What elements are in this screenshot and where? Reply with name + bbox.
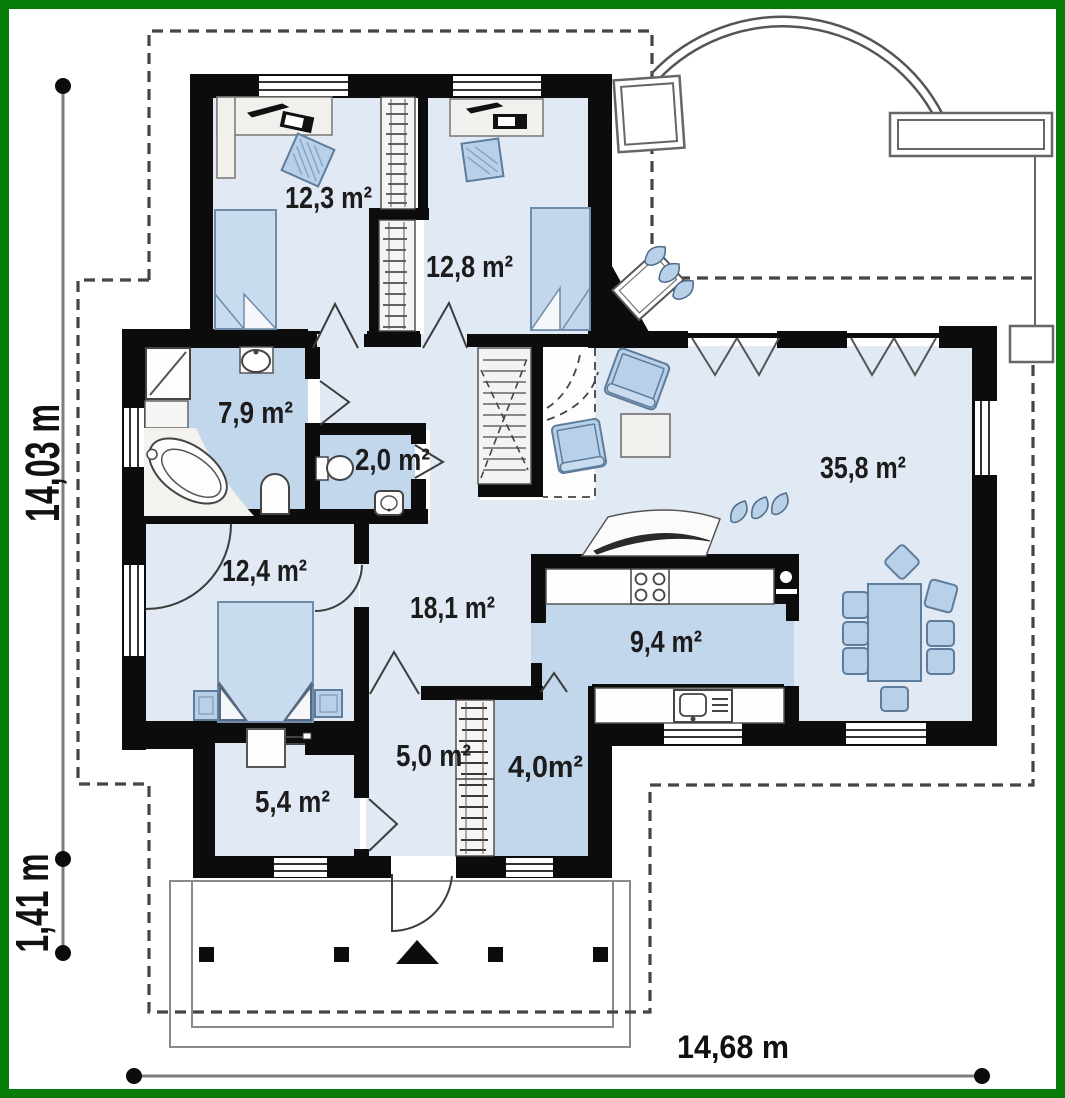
svg-text:2,0 m²: 2,0 m²	[355, 442, 430, 477]
svg-text:5,4 m²: 5,4 m²	[255, 784, 330, 819]
svg-text:12,8 m²: 12,8 m²	[426, 249, 513, 284]
svg-text:1,41 m: 1,41 m	[6, 854, 58, 953]
svg-text:5,0 m²: 5,0 m²	[396, 738, 471, 773]
svg-text:12,3 m²: 12,3 m²	[285, 180, 372, 215]
svg-text:7,9 m²: 7,9 m²	[218, 395, 293, 430]
svg-text:18,1 m²: 18,1 m²	[410, 590, 495, 625]
svg-text:9,4 m²: 9,4 m²	[630, 624, 702, 659]
svg-text:4,0m²: 4,0m²	[508, 749, 583, 784]
svg-text:14,68 m: 14,68 m	[677, 1029, 789, 1065]
svg-text:35,8 m²: 35,8 m²	[820, 450, 906, 485]
svg-text:14,03 m: 14,03 m	[17, 404, 70, 522]
svg-text:12,4 m²: 12,4 m²	[222, 553, 307, 588]
